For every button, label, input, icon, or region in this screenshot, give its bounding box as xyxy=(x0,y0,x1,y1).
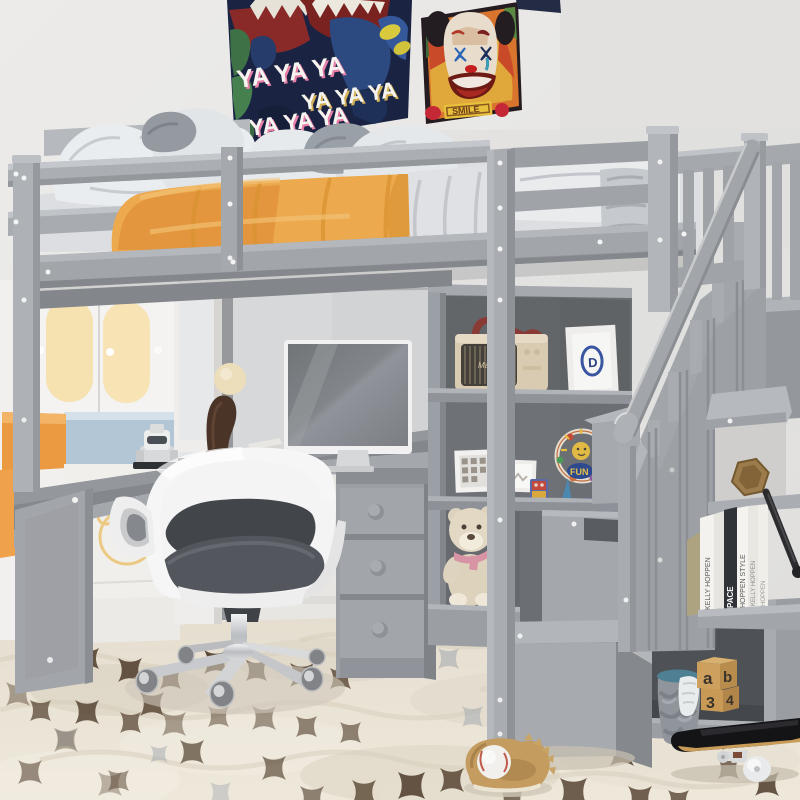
svg-text:4: 4 xyxy=(726,692,734,708)
svg-text:PACE: PACE xyxy=(726,586,735,608)
svg-text:FUN: FUN xyxy=(570,467,589,477)
svg-text:HOPPEN: HOPPEN xyxy=(761,581,767,606)
svg-text:a: a xyxy=(703,669,713,688)
svg-text:HOPPEN STYLE: HOPPEN STYLE xyxy=(740,554,747,608)
svg-text:D: D xyxy=(588,355,598,370)
svg-text:b: b xyxy=(723,669,732,686)
svg-text:KELLY HOPPEN: KELLY HOPPEN xyxy=(705,557,712,610)
svg-text:KELLY HOPPEN: KELLY HOPPEN xyxy=(751,561,757,606)
svg-text:3: 3 xyxy=(706,695,715,712)
